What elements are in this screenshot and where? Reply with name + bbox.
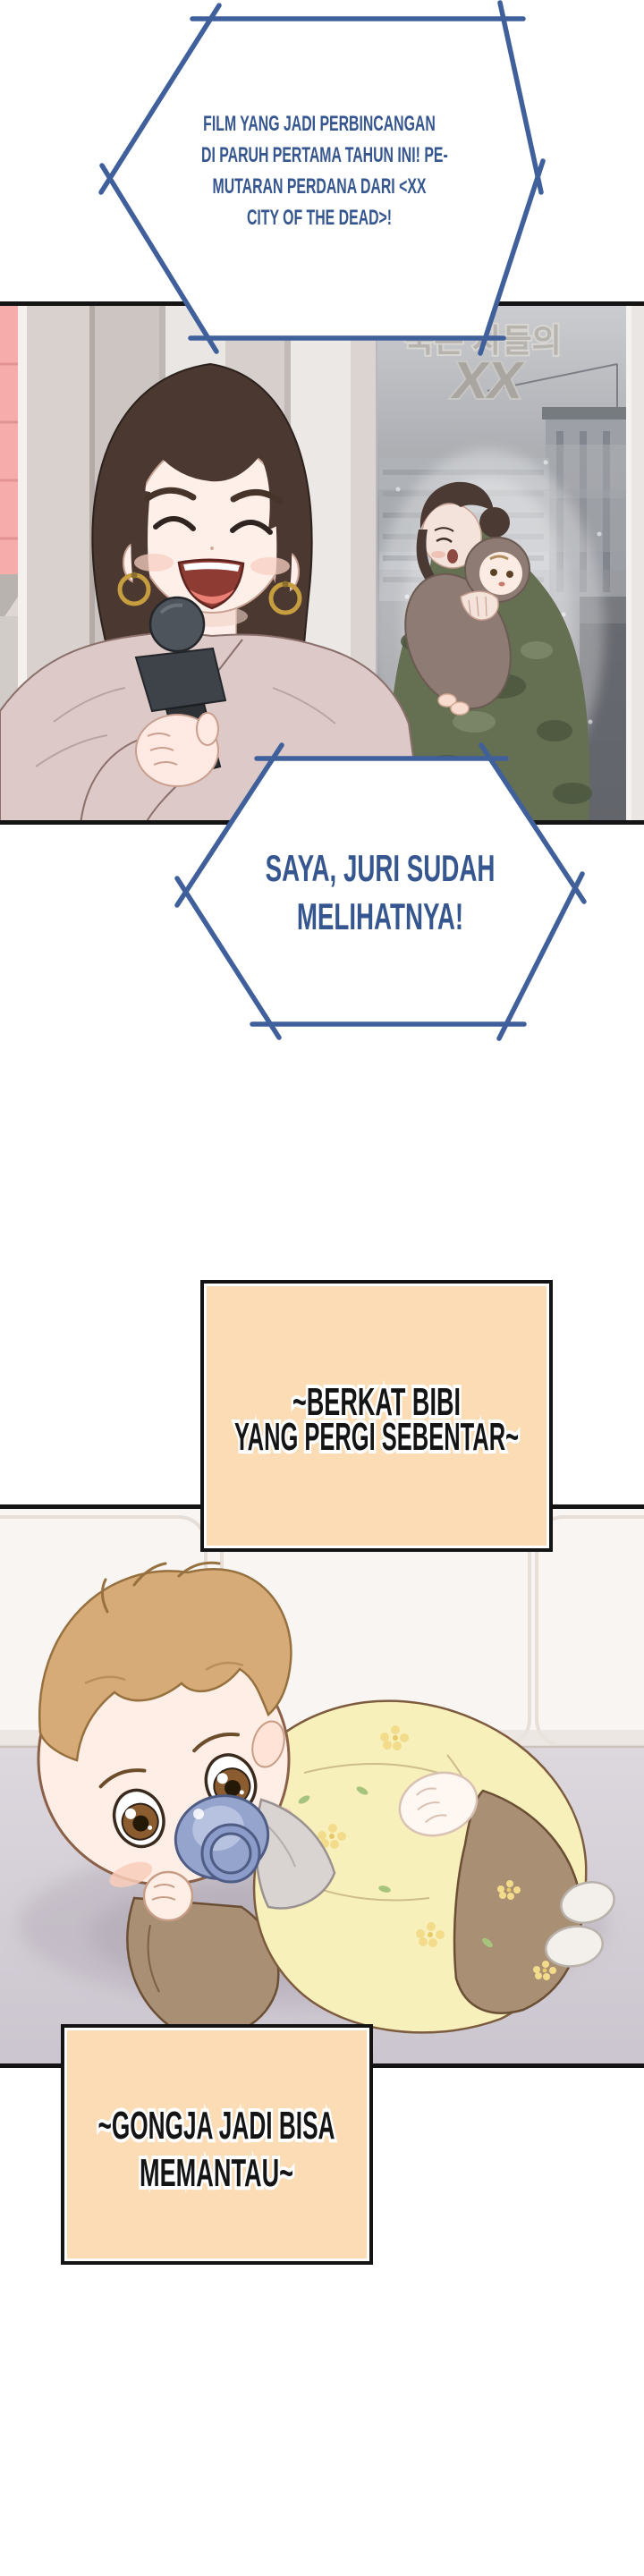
bubble-line: FILM YANG JADI PERBINCANGAN — [201, 108, 437, 140]
caption-text-line: MEMANTAU~ — [140, 2151, 293, 2195]
bubble-line: SAYA, JURI SUDAH — [262, 844, 498, 893]
baby-panel — [0, 1504, 644, 2068]
caption-text-line: YANG PERGI SEBENTAR~ — [234, 1415, 519, 1459]
speech-bubble-film-text: FILM YANG JADI PERBINCANGAN DI PARUH PER… — [201, 108, 437, 233]
comic-page: 죽은 자들의 XX — [0, 0, 644, 2576]
bubble-line: MELIHATNYA! — [262, 893, 498, 941]
bubble-line: DI PARUH PERTAMA TAHUN INI! PE- — [201, 140, 437, 171]
speech-bubble-jury-text: SAYA, JURI SUDAH MELIHATNYA! — [262, 844, 498, 941]
bubble-line: CITY OF THE DEAD>! — [201, 202, 437, 233]
caption-text-line: ~GONGJA JADI BISA — [98, 2104, 335, 2148]
caption-box-aunt: ~BERKAT BIBI YANG PERGI SEBENTAR~ — [200, 1280, 553, 1552]
poster-xx-title: XX — [448, 352, 528, 410]
bubble-line: MUTARAN PERDANA DARI <XX — [201, 171, 437, 202]
caption-box-gongja: ~GONGJA JADI BISA MEMANTAU~ — [61, 2024, 373, 2265]
